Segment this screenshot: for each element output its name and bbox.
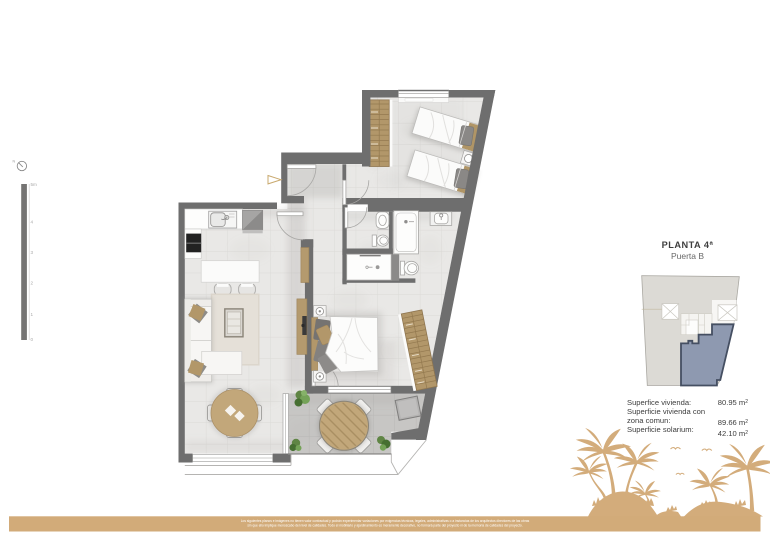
svg-text:4: 4 <box>31 220 34 225</box>
svg-text:0: 0 <box>31 337 34 342</box>
svg-text:1: 1 <box>31 312 34 317</box>
svg-text:Los siguientes planos e imágen: Los siguientes planos e imágenes no tien… <box>241 519 530 523</box>
svg-text:N: N <box>13 160 16 164</box>
svg-text:2: 2 <box>31 281 34 286</box>
svg-text:sin que ello implique menoscab: sin que ello implique menoscabo del nive… <box>247 523 522 527</box>
svg-text:5m: 5m <box>31 182 38 187</box>
svg-text:3: 3 <box>31 250 34 255</box>
